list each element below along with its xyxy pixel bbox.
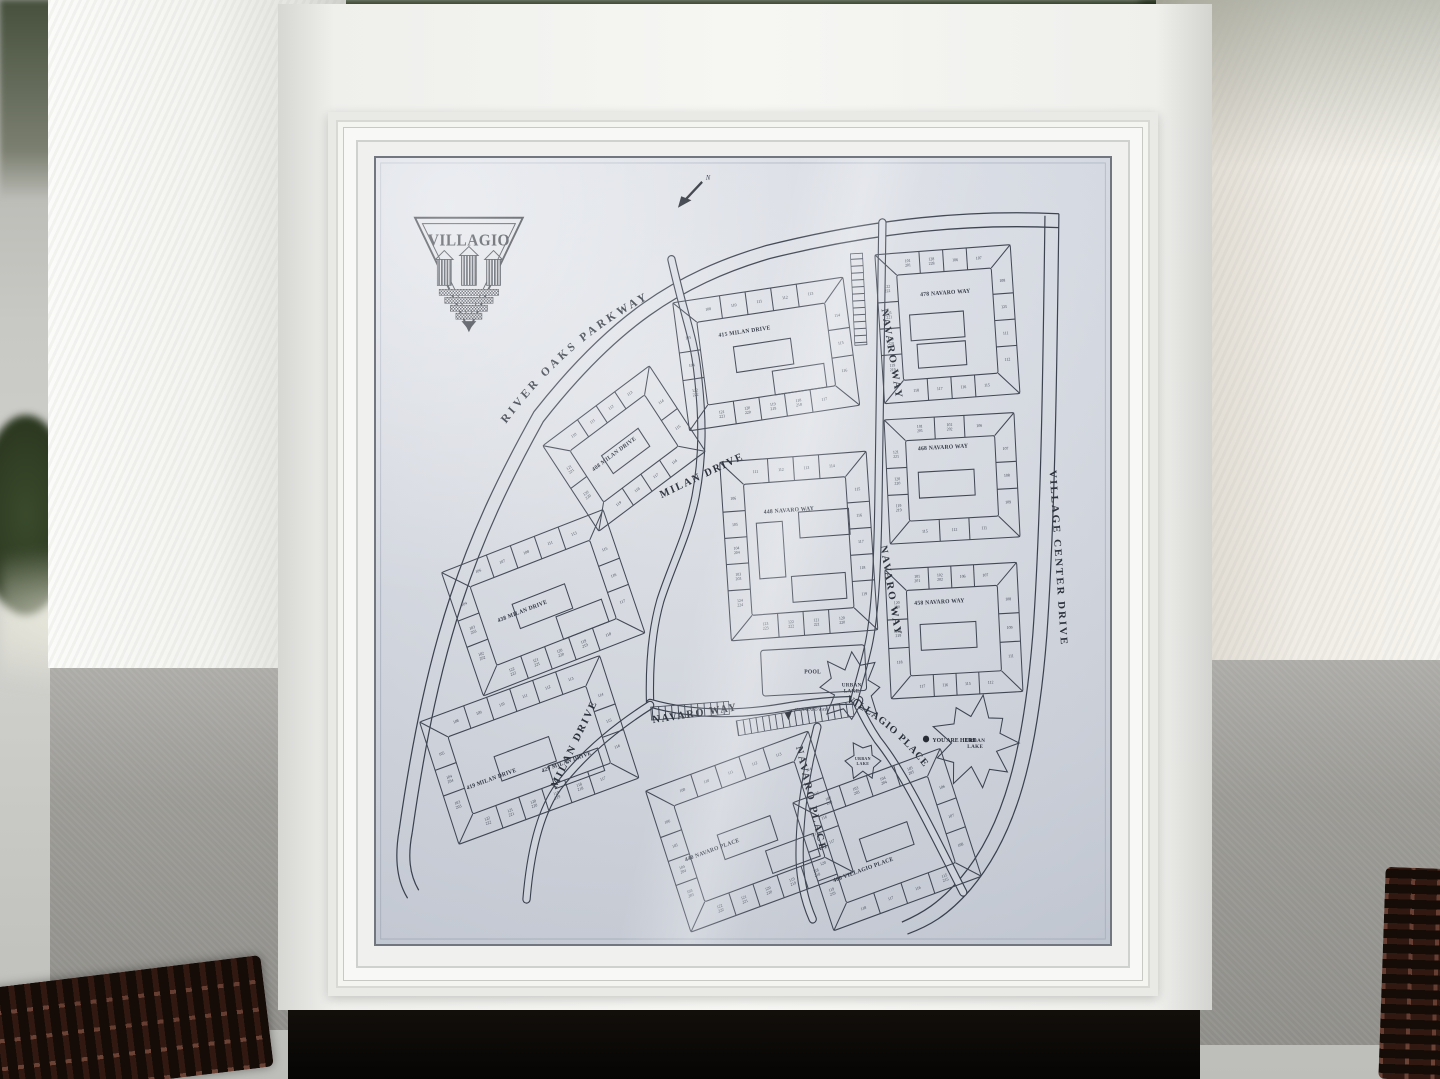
unit-number: 105 xyxy=(732,522,738,528)
unit-number: 115 xyxy=(984,382,990,388)
unit-number: 118 xyxy=(897,659,903,664)
unit-number: 118 xyxy=(605,631,612,638)
unit-number: 102202 xyxy=(946,422,952,432)
unit-number: 114 xyxy=(834,312,840,318)
unit-number: 119219 xyxy=(770,401,777,411)
unit-number: 111 xyxy=(589,417,596,425)
unit-number: 117 xyxy=(619,598,626,605)
building-cluster: 1012011022021061071081091111121151192191… xyxy=(884,413,1020,544)
street-river-oaks-parkway: RIVER OAKS PARKWAY xyxy=(499,290,651,426)
unit-number: 108 xyxy=(705,306,711,312)
unit-number: 109 xyxy=(1005,499,1011,504)
unit-number: 117 xyxy=(919,683,925,688)
unit-number: 107 xyxy=(982,572,988,577)
unit-number: 102202 xyxy=(477,650,486,661)
unit-number: 115 xyxy=(838,340,844,346)
unit-number: 121221 xyxy=(718,409,725,419)
building-cluster: 1012011022021061071081091111121151161171… xyxy=(885,562,1023,699)
unit-number: 108 xyxy=(957,841,964,848)
unit-number: 104204 xyxy=(733,545,739,555)
parking-rows xyxy=(651,253,867,735)
north-label: N xyxy=(705,175,711,182)
unit-number: 116 xyxy=(610,572,617,579)
unit-number: 118 xyxy=(633,486,640,494)
unit-number: 117 xyxy=(599,775,606,782)
you-are-here-marker: YOU ARE HERE xyxy=(923,736,976,744)
unit-number: 121221 xyxy=(565,463,575,474)
unit-number: 104 xyxy=(460,600,467,607)
unit-number: 121221 xyxy=(813,617,819,627)
unit-number: 113 xyxy=(567,675,574,682)
unit-number: 122222 xyxy=(716,903,724,914)
cluster-address: 460 VILLAGIO PLACE xyxy=(833,856,895,884)
unit-number: 125 xyxy=(1001,304,1007,310)
unit-number: 111 xyxy=(753,469,759,475)
unit-number: 104204 xyxy=(879,775,887,786)
unit-number: 110 xyxy=(731,302,737,308)
unit-number: 115215 xyxy=(941,872,949,883)
street-navaro-way-e: NAVARO WAY xyxy=(878,545,903,638)
pool-callout: 451 NAVARO WAY xyxy=(795,707,828,712)
unit-number: 110 xyxy=(703,778,710,785)
building-cluster: 1081091101111121131141151161171182181192… xyxy=(420,656,639,845)
unit-number: 103203 xyxy=(469,624,478,635)
pool-label: POOL xyxy=(804,669,821,675)
unit-number: 114 xyxy=(597,691,604,698)
north-arrow: N xyxy=(678,175,711,208)
unit-number: 120220 xyxy=(556,647,565,658)
unit-number: 106 xyxy=(730,495,736,501)
unit-number: 111 xyxy=(981,525,987,530)
unit-number: 113 xyxy=(807,290,813,296)
unit-number: 118 xyxy=(913,387,919,393)
unit-number: 109 xyxy=(1007,625,1013,630)
unit-number: 107 xyxy=(1002,446,1008,451)
unit-number: 122222 xyxy=(884,283,890,293)
unit-number: 113 xyxy=(803,465,809,471)
unit-number: 112 xyxy=(988,679,994,684)
unit-number: 122222 xyxy=(508,666,517,677)
unit-number: 107 xyxy=(976,255,982,261)
cluster-address: 478 NAVARO WAY xyxy=(920,288,971,298)
building-cluster: 1101111121131141151161171181191202201212… xyxy=(543,366,706,531)
unit-number: 102202 xyxy=(937,572,943,582)
unit-number: 121221 xyxy=(740,894,748,905)
unit-number: 116 xyxy=(671,458,678,466)
unit-number: 120 xyxy=(819,860,826,867)
unit-number: 106 xyxy=(475,567,482,574)
unit-number: 112 xyxy=(952,527,958,532)
unit-number: 119 xyxy=(615,500,622,508)
unit-number: 111 xyxy=(727,769,734,776)
unit-number: 112 xyxy=(782,294,788,300)
unit-number: 121221 xyxy=(506,807,514,818)
unit-number: 114 xyxy=(657,398,664,406)
you-are-here-dot xyxy=(923,736,929,743)
unit-number: 111 xyxy=(1008,653,1014,658)
unit-number: 103203 xyxy=(454,799,462,810)
unit-number: 106 xyxy=(664,818,671,825)
unit-number: 108 xyxy=(1004,472,1010,477)
unit-number: 118 xyxy=(860,565,866,571)
unit-number: 118 xyxy=(860,905,867,912)
cluster-address: 458 NAVARO WAY xyxy=(914,598,965,607)
unit-number: 108 xyxy=(452,718,459,725)
sign-body: 1101111121131141151161171181191202201212… xyxy=(278,4,1212,1010)
villagio-logo: VILLAGIO xyxy=(415,218,523,330)
unit-number: 116 xyxy=(960,384,966,390)
unit-number: 101201 xyxy=(905,258,911,268)
unit-number: 110 xyxy=(570,431,577,439)
site-map: 1101111121131141151161171181191202201212… xyxy=(376,158,1110,944)
unit-number: 120220 xyxy=(529,798,537,809)
unit-number: 128228 xyxy=(928,256,934,266)
unit-number: 119219 xyxy=(580,638,589,649)
drain-grate-right xyxy=(1378,867,1440,1079)
unit-number: 107 xyxy=(948,812,955,819)
unit-number: 120220 xyxy=(894,476,900,486)
cluster-address: 408 MILAN DRIVE xyxy=(591,436,637,473)
unit-number: 119219 xyxy=(895,503,901,513)
unit-number: 118218 xyxy=(575,781,583,792)
cluster-address: 448 NAVARO WAY xyxy=(764,506,815,516)
cluster-address: 415 MILAN DRIVE xyxy=(718,325,771,339)
unit-number: 106 xyxy=(976,423,982,428)
unit-number: 116 xyxy=(614,743,621,750)
unit-number: 116 xyxy=(841,367,847,373)
unit-number: 122222 xyxy=(788,619,794,629)
unit-number: 106 xyxy=(938,783,945,790)
unit-number: 104 xyxy=(688,362,694,368)
unit-number: 105 xyxy=(685,334,691,340)
unit-number: 111 xyxy=(1003,330,1009,336)
unit-number: 121221 xyxy=(532,656,541,667)
unit-number: 103203 xyxy=(686,888,694,899)
unit-number: 109 xyxy=(475,709,482,716)
unit-number: 108 xyxy=(999,277,1005,283)
unit-number: 105205 xyxy=(906,765,914,776)
unit-number: 115 xyxy=(965,681,971,686)
unit-number: 111 xyxy=(756,298,762,304)
unit-number: 111 xyxy=(521,692,528,699)
north-arrow-head xyxy=(678,196,691,207)
unit-number: 113 xyxy=(570,530,577,537)
unit-number: 112 xyxy=(751,760,758,767)
unit-number: 113 xyxy=(775,751,782,758)
unit-number: 122222 xyxy=(483,815,491,826)
urban-lake-label: URBANLAKE xyxy=(842,682,862,694)
unit-number: 104204 xyxy=(678,864,686,875)
street-village-center-drive: VILLAGE CENTER DRIVE xyxy=(1047,470,1069,647)
unit-number: 101201 xyxy=(914,573,920,583)
you-are-here-label: YOU ARE HERE xyxy=(933,738,977,744)
unit-number: 122222 xyxy=(692,387,699,397)
building-cluster: 1111121131141151161171181191202201212211… xyxy=(720,451,878,641)
cluster-address: 419 MILAN DRIVE xyxy=(466,768,517,792)
unit-number: 117 xyxy=(652,472,659,480)
map-frame-outer: 1101111121131141151161171181191202201212… xyxy=(328,112,1158,996)
unit-number: 119 xyxy=(861,591,867,597)
unit-number: 118218 xyxy=(795,397,802,407)
unit-number: 116 xyxy=(914,885,921,892)
unit-number: 101201 xyxy=(917,423,923,433)
unit-number: 120220 xyxy=(744,405,751,415)
cluster-address: 468 NAVARO WAY xyxy=(918,443,969,452)
unit-number: 123223 xyxy=(762,621,768,631)
unit-number: 112 xyxy=(607,403,614,411)
unit-number: 117 xyxy=(828,838,835,845)
unit-number: 106 xyxy=(960,573,966,578)
unit-number: 115 xyxy=(605,717,612,724)
unit-number: 117 xyxy=(821,396,827,402)
unit-number: 117 xyxy=(887,895,894,902)
unit-number: 110 xyxy=(498,701,505,708)
unit-number: 116 xyxy=(942,682,948,687)
unit-number: 108 xyxy=(1005,596,1011,601)
unit-number: 107 xyxy=(499,558,506,565)
unit-number: 113 xyxy=(626,389,633,397)
unit-number: 121221 xyxy=(893,449,899,459)
map-panel: 1101111121131141151161171181191202201212… xyxy=(374,156,1112,946)
unit-number: 116 xyxy=(856,512,862,518)
map-frame-inner: 1101111121131141151161171181191202201212… xyxy=(344,128,1142,980)
unit-number: 114 xyxy=(829,463,835,469)
unit-number: 104204 xyxy=(445,773,453,784)
unit-number: 120220 xyxy=(839,615,845,625)
unit-number: 117 xyxy=(858,538,864,544)
unit-number: 115 xyxy=(674,423,681,431)
urban-lake-label: URBANLAKE xyxy=(855,756,871,766)
unit-number: 108 xyxy=(522,549,529,556)
unit-number: 115 xyxy=(922,528,928,533)
drain-grate-left xyxy=(0,955,274,1079)
unit-number: 115 xyxy=(854,486,860,492)
photo-scene: 1101111121131141151161171181191202201212… xyxy=(0,0,1440,1079)
unit-number: 119219 xyxy=(828,886,836,897)
unit-number: 106 xyxy=(952,257,958,263)
unit-number: 111 xyxy=(547,539,554,546)
unit-number: 112 xyxy=(1004,356,1010,362)
unit-number: 119219 xyxy=(788,876,796,887)
unit-number: 120220 xyxy=(764,885,772,896)
unit-number: 124224 xyxy=(737,598,743,608)
unit-number: 105 xyxy=(671,842,678,849)
unit-number: 108 xyxy=(679,786,686,793)
cluster-address: 440 NAVARO PLACE xyxy=(684,838,740,864)
unit-number: 115 xyxy=(601,546,608,553)
unit-number: 102202 xyxy=(825,795,833,806)
unit-number: 103203 xyxy=(852,785,860,796)
unit-number: 105 xyxy=(438,750,445,757)
unit-number: 103203 xyxy=(735,571,741,581)
unit-number: 117 xyxy=(937,386,943,392)
unit-number: 112 xyxy=(544,684,551,691)
unit-number: 112 xyxy=(778,467,784,473)
unit-number: 120220 xyxy=(582,489,592,500)
